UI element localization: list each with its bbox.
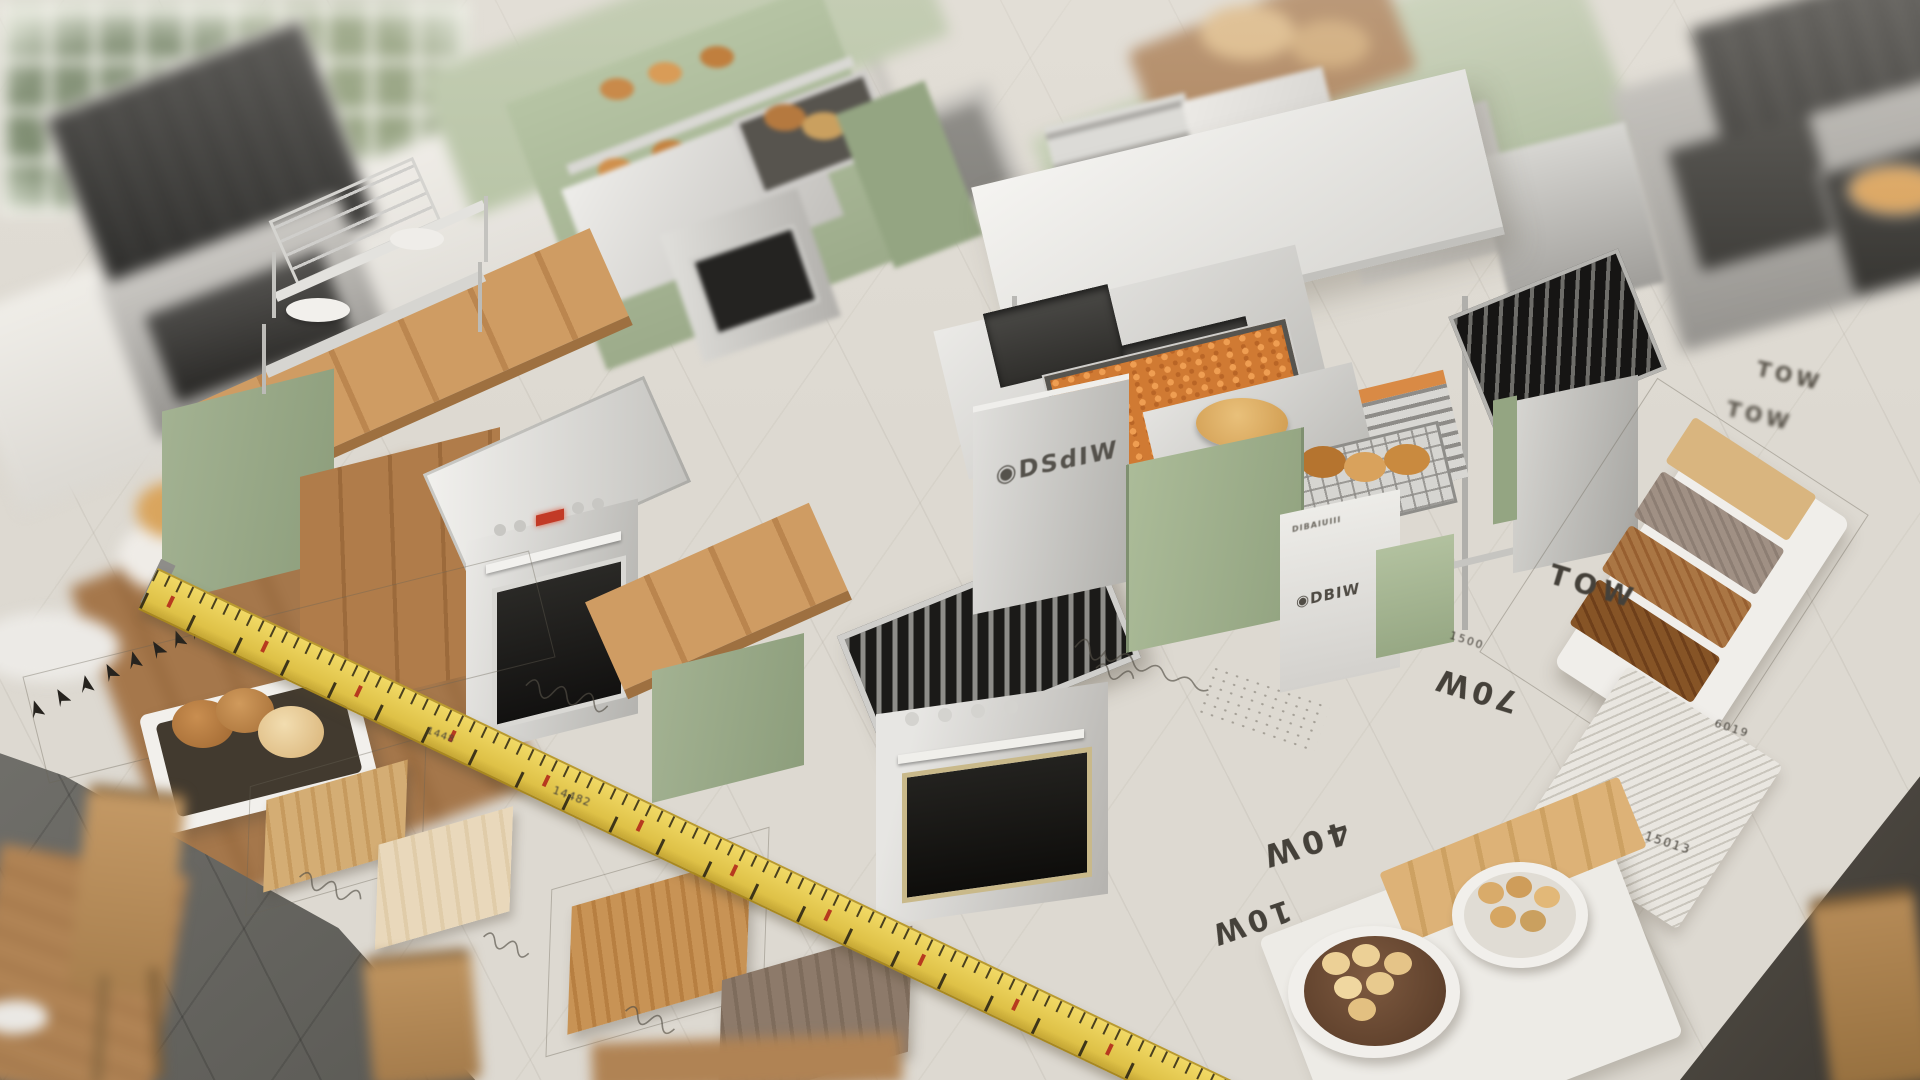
foreground-furniture	[0, 0, 1920, 1080]
chair-right	[1809, 886, 1920, 1080]
table-bottom-centre	[591, 1033, 903, 1080]
chair-back	[362, 948, 481, 1080]
render-scene: ◉DSdIW DIBAIUIII ◉DBIW ALLSOTTFLEQQILE	[0, 0, 1920, 1080]
